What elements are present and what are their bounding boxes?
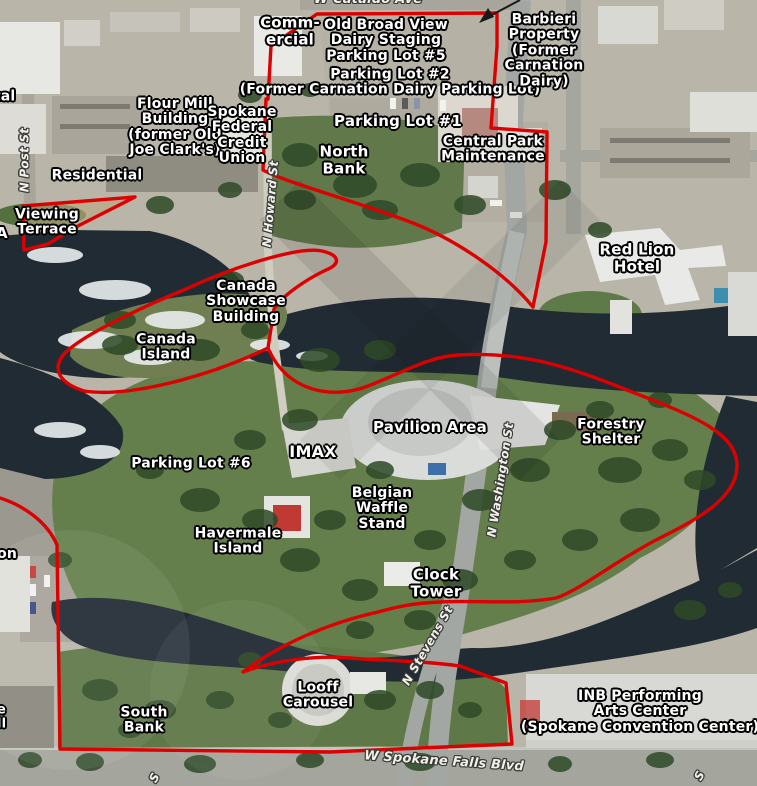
label-partial-e-ll: ell — [0, 704, 6, 733]
label-inb-performing-arts-center: INB PerformingArts Center(Spokane Conven… — [521, 689, 757, 735]
label-n-howard-st: N Howard St — [261, 160, 282, 248]
label-old-broad-view-dairy-staging-parking-lot-5: Old Broad ViewDairy StagingParking Lot #… — [324, 18, 448, 64]
label-w-spokane-falls-blvd: W Spokane Falls Blvd — [364, 749, 525, 774]
label-canada-showcase-building: CanadaShowcaseBuilding — [206, 279, 286, 325]
label-havermale-island: HavermaleIsland — [195, 527, 282, 558]
label-a-partial: A — [0, 225, 8, 242]
label-pavilion-area: Pavilion Area — [373, 419, 487, 436]
label-w-cataldo-ave: W Cataldo Ave — [314, 0, 423, 7]
label-belgian-waffle-stand: BelgianWaffleStand — [352, 486, 413, 532]
label-spokane-federal-credit-union: SpokaneFederalCreditUnion — [207, 105, 276, 167]
label-rental-company-partial: entalny — [0, 90, 15, 121]
label-looff-carousel: LooffCarousel — [283, 681, 353, 712]
label-washington-partial: gtonerer — [0, 547, 17, 593]
label-commercial: Comm-ercial — [260, 15, 320, 48]
label-n-stevens-st: N Stevens St — [400, 604, 456, 688]
label-parking-lot-1: Parking Lot #1 — [334, 113, 462, 130]
label-red-lion-hotel: Red LionHotel — [600, 242, 675, 275]
label-barbieri-property: BarbieriProperty(FormerCarnationDairy) — [505, 13, 584, 90]
label-canada-island: CanadaIsland — [136, 333, 196, 364]
label-residential: Residential — [52, 168, 143, 183]
labels-layer: W Cataldo AveComm-ercialOld Broad ViewDa… — [0, 0, 757, 786]
label-south-bank: SouthBank — [120, 706, 167, 737]
label-forestry-shelter: ForestryShelter — [577, 418, 645, 449]
label-north-bank: NorthBank — [319, 144, 368, 177]
label-clock-tower: ClockTower — [411, 567, 462, 600]
label-s-street-partial-right: S — [692, 769, 708, 783]
label-n-washington-st: N Washington St — [485, 422, 516, 538]
label-viewing-terrace: ViewingTerrace — [15, 208, 79, 239]
label-n-post-st: N Post St — [18, 128, 31, 193]
label-parking-lot-2: Parking Lot #2(Former Carnation Dairy Pa… — [240, 68, 541, 99]
label-central-park-maintenance: Central ParkMaintenance — [441, 135, 545, 166]
label-parking-lot-6: Parking Lot #6 — [131, 456, 251, 471]
aerial-map: W Cataldo AveComm-ercialOld Broad ViewDa… — [0, 0, 757, 786]
label-s-street-partial-left: S — [147, 771, 163, 785]
label-imax: IMAX — [289, 443, 336, 461]
